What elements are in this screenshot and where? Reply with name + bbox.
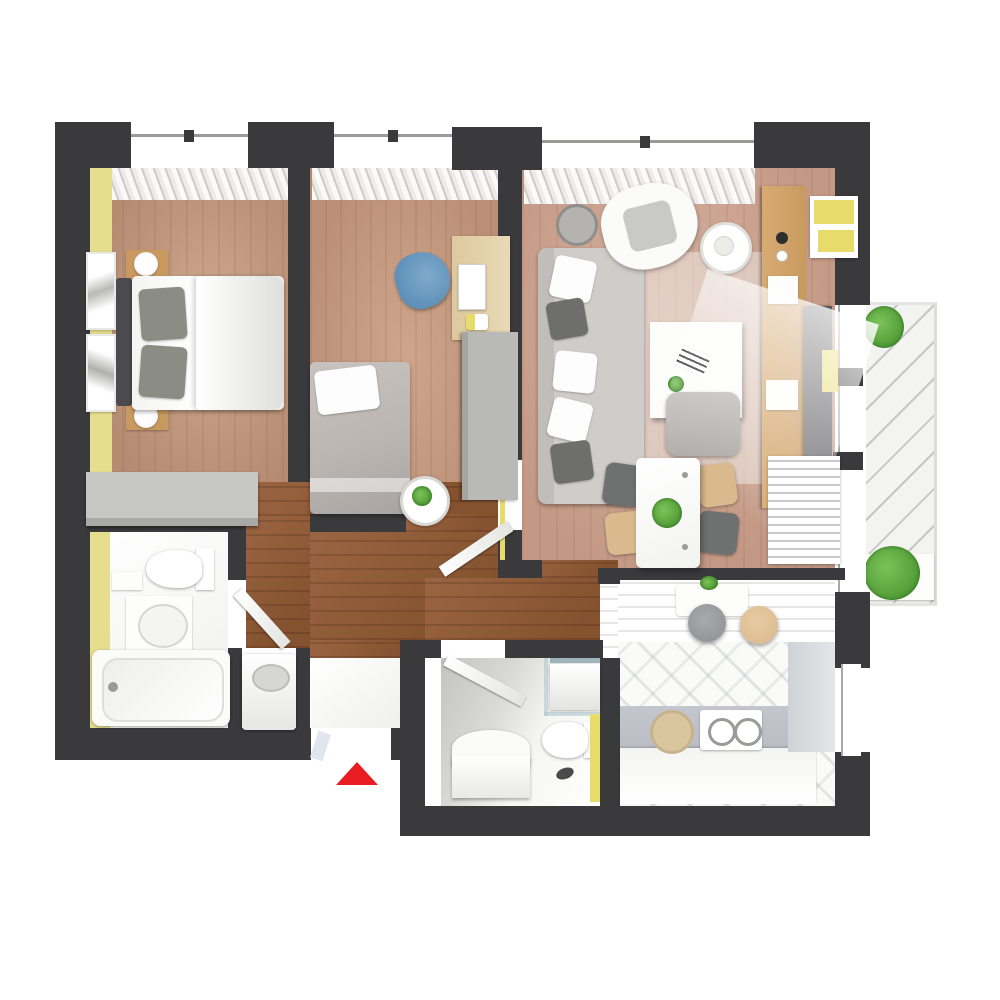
wall-shower-room-right [600,658,620,808]
dining-chair-top-right [695,462,738,509]
tv-board-item-1 [768,276,798,304]
bedroom-wardrobe [86,472,258,526]
entrance-floor [311,658,400,728]
duvet [196,276,284,410]
wall-top-pier-3 [452,127,542,170]
wall-study-bottom [310,514,406,532]
single-bed-fold [310,478,410,492]
bed-pillow-1 [138,286,188,341]
shower-glass-vertical [544,658,548,716]
yellow-box-2 [818,230,854,252]
sofa-pillow-3 [552,350,598,394]
kitchen-window [841,664,861,756]
wall-right-lower [835,752,870,836]
pouf [666,392,740,456]
coffee-table-plant [668,376,684,392]
kitchen-counter-front [620,748,816,804]
kitchen-plant [700,576,718,590]
window-living-mullion [640,136,650,148]
washing-machine-lid [252,664,290,692]
wall-picture-1 [86,252,116,330]
wall-bottom-left [55,728,311,760]
bathtub-inner [102,658,224,722]
side-table-small [556,204,598,246]
single-bed-pillow [314,364,381,415]
bedroom-curtains [112,168,288,200]
kitchen-counter-right [788,642,835,752]
bathtub-faucet [108,682,118,692]
dining-table-dot-1 [682,472,688,478]
tv-board-item-2 [766,380,798,410]
shower-toilet-bowl [542,722,588,758]
wall-bottom [400,806,870,836]
floor-plan-canvas [0,0,1000,1000]
louver-radiator [768,456,840,564]
bar-stool-beige [740,606,778,644]
wall-shower-room-top-left [425,640,441,658]
wall-shower-room-top-right [505,640,603,658]
sofa-pillow-2 [545,297,589,341]
balcony-window-strip [838,305,866,592]
toilet-bowl [146,550,202,588]
vanity-mirror [550,658,600,663]
washbasin-bowl [138,604,188,648]
bed-headboard [116,278,132,406]
vanity-unit [550,664,600,710]
study-table-plant [412,486,432,506]
wall-niche-right [296,648,310,736]
hob-burner-2 [734,718,762,746]
hob-burner-1 [708,718,736,746]
balcony-plant-bottom [864,546,920,600]
yellow-box-3 [822,350,838,392]
shower-room-accent-yellow [590,714,600,802]
balcony-plant-top [864,306,904,348]
window-bedroom-mullion [184,130,194,142]
tv-board-bottle-2 [776,250,788,262]
study-curtains [312,168,498,200]
wall-left [55,122,90,760]
dining-table-plant [652,498,682,528]
laptop [458,264,486,310]
bar-stool-gray [688,604,726,642]
desk-toy [466,314,488,330]
entrance-door-leaf [310,731,331,762]
hallway-floor [425,578,618,640]
wall-hall-dining-stub [498,560,542,578]
bed-pillow-2 [138,344,188,399]
wall-picture-2 [86,334,116,412]
sofa-pillow-5 [549,439,594,484]
lamp-top [134,252,158,276]
study-wardrobe [462,332,518,500]
kitchen-sink [650,710,694,754]
entrance-arrow [336,762,378,785]
yellow-box-1 [814,200,854,224]
sofa-pillow-1 [548,254,598,304]
wall-niche-left [228,648,242,736]
window-study-mullion [388,130,398,142]
kitchen-bar-rail [618,568,845,580]
tv-board-bottle-1 [776,232,788,244]
dining-chair-bottom-right [696,510,740,556]
bathroom-shelf [112,572,142,590]
bath-seat-base [452,756,530,798]
wall-right-mid [835,592,870,668]
kitchen-rail-stub [598,568,620,584]
side-table-round-inner [714,236,734,256]
wall-bedroom-study [288,150,310,482]
dining-table-dot-2 [682,544,688,550]
